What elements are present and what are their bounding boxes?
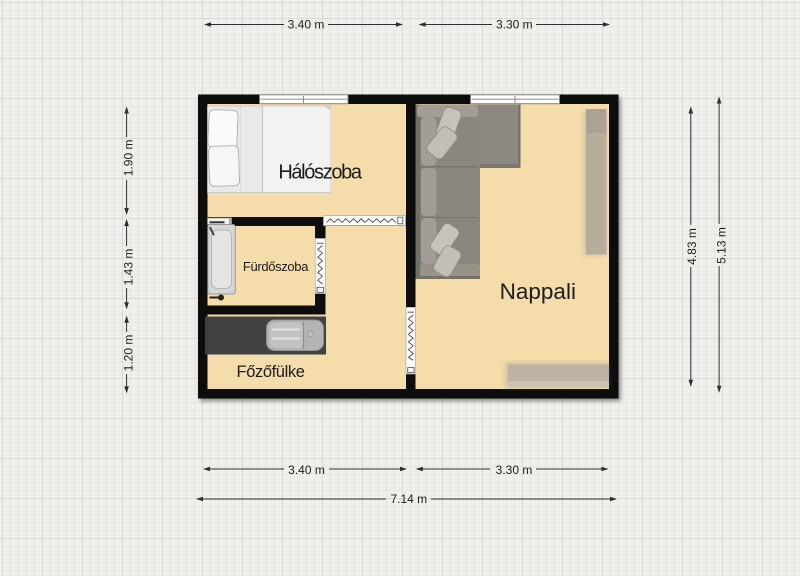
svg-text:3.40 m: 3.40 m bbox=[288, 463, 325, 477]
svg-text:Fürdőszoba: Fürdőszoba bbox=[243, 259, 309, 274]
svg-text:1.43 m: 1.43 m bbox=[122, 249, 136, 286]
svg-text:Hálószoba: Hálószoba bbox=[278, 161, 363, 183]
svg-text:4.83 m: 4.83 m bbox=[685, 228, 699, 265]
svg-text:7.14 m: 7.14 m bbox=[390, 492, 427, 506]
svg-text:3.30 m: 3.30 m bbox=[496, 18, 533, 32]
svg-text:Főzőfülke: Főzőfülke bbox=[237, 363, 305, 381]
svg-text:1.90 m: 1.90 m bbox=[122, 140, 136, 177]
svg-text:5.13 m: 5.13 m bbox=[715, 227, 729, 264]
svg-text:Nappali: Nappali bbox=[500, 279, 576, 304]
svg-text:3.40 m: 3.40 m bbox=[288, 18, 325, 32]
svg-text:3.30 m: 3.30 m bbox=[496, 463, 533, 477]
svg-text:1.20 m: 1.20 m bbox=[122, 335, 136, 372]
